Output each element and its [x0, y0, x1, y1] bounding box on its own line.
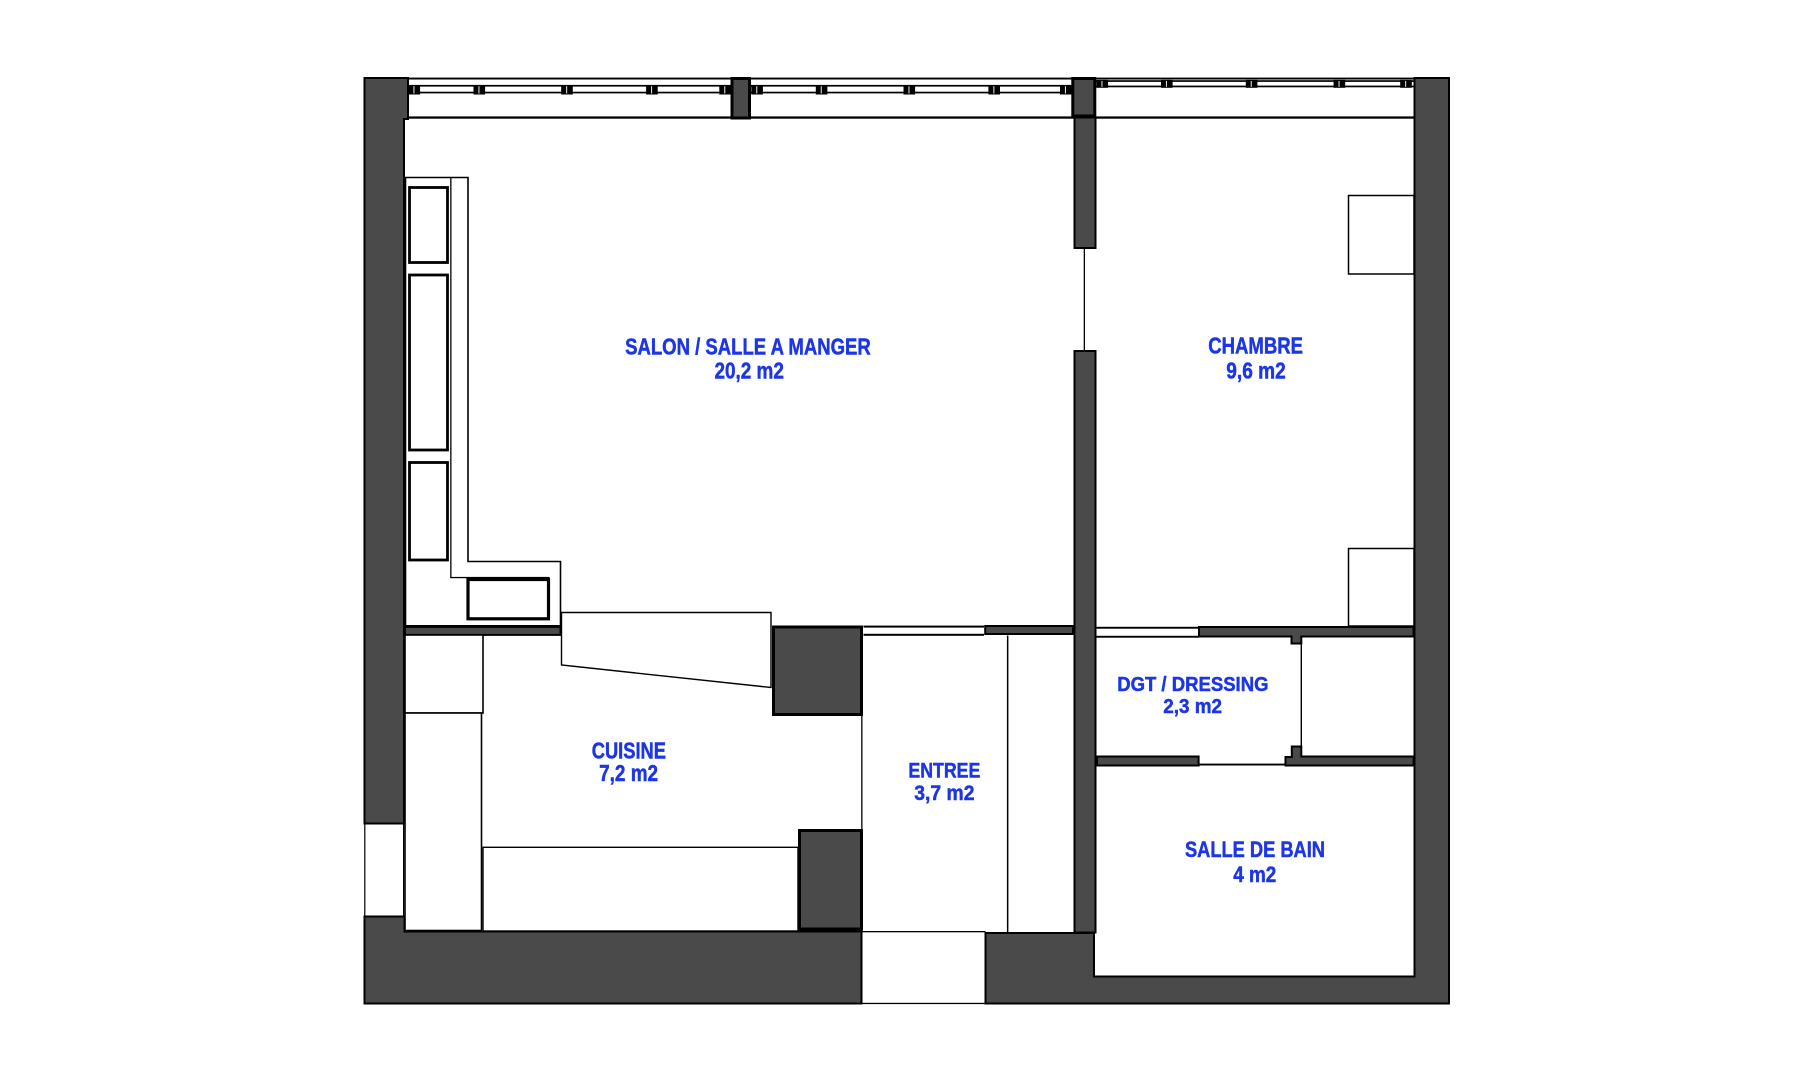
svg-text:CHAMBRE: CHAMBRE	[1208, 333, 1303, 359]
svg-text:4 m2: 4 m2	[1233, 862, 1276, 887]
svg-text:20,2 m2: 20,2 m2	[715, 358, 784, 384]
svg-text:3,7 m2: 3,7 m2	[914, 781, 974, 805]
svg-text:ENTREE: ENTREE	[908, 759, 980, 783]
svg-text:9,6 m2: 9,6 m2	[1226, 357, 1285, 383]
svg-text:SALON / SALLE A MANGER: SALON / SALLE A MANGER	[625, 333, 871, 359]
svg-text:SALLE DE BAIN: SALLE DE BAIN	[1185, 837, 1325, 862]
svg-text:7,2 m2: 7,2 m2	[599, 760, 658, 786]
svg-text:DGT / DRESSING: DGT / DRESSING	[1117, 674, 1268, 696]
svg-text:2,3 m2: 2,3 m2	[1163, 696, 1222, 718]
